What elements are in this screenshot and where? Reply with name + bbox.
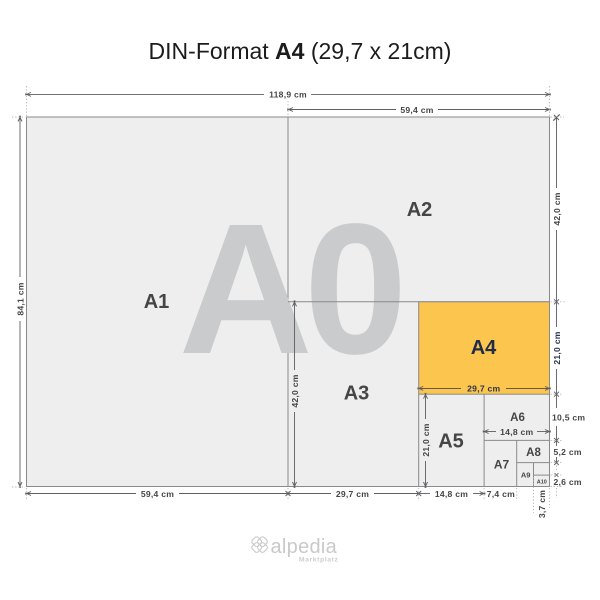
svg-text:A2: A2 <box>407 199 433 221</box>
svg-text:Marktplatz: Marktplatz <box>299 556 339 563</box>
svg-text:42,0 cm: 42,0 cm <box>290 374 300 407</box>
svg-text:21,0 cm: 21,0 cm <box>421 423 431 456</box>
svg-text:42,0 cm: 42,0 cm <box>552 192 562 225</box>
svg-text:118,9 cm: 118,9 cm <box>269 90 307 100</box>
svg-text:5,2 cm: 5,2 cm <box>554 447 582 457</box>
svg-text:A6: A6 <box>510 412 525 424</box>
svg-text:84,1 cm: 84,1 cm <box>15 282 25 315</box>
svg-text:A9: A9 <box>521 471 531 480</box>
svg-text:59,4 cm: 59,4 cm <box>141 489 174 499</box>
svg-text:alpedia: alpedia <box>271 536 338 558</box>
svg-text:29,7 cm: 29,7 cm <box>336 489 369 499</box>
svg-text:A4: A4 <box>471 337 497 359</box>
svg-text:14,8 cm: 14,8 cm <box>500 427 533 437</box>
svg-text:10,5 cm: 10,5 cm <box>552 412 585 422</box>
svg-text:A5: A5 <box>438 430 464 452</box>
svg-text:A0: A0 <box>179 186 400 393</box>
svg-text:3,7 cm: 3,7 cm <box>537 490 547 518</box>
svg-text:A10: A10 <box>537 479 547 485</box>
svg-text:7,4 cm: 7,4 cm <box>487 489 515 499</box>
svg-text:21,0 cm: 21,0 cm <box>552 331 562 364</box>
svg-text:DIN-Format A4 (29,7 x 21cm): DIN-Format A4 (29,7 x 21cm) <box>149 38 452 64</box>
svg-text:59,4 cm: 59,4 cm <box>400 105 433 115</box>
svg-text:A8: A8 <box>526 447 541 459</box>
svg-text:A3: A3 <box>344 382 370 404</box>
svg-text:2,6 cm: 2,6 cm <box>554 477 582 487</box>
svg-text:14,8 cm: 14,8 cm <box>435 489 468 499</box>
svg-text:A7: A7 <box>494 457 510 471</box>
svg-text:29,7 cm: 29,7 cm <box>467 384 500 394</box>
svg-text:A1: A1 <box>144 291 170 313</box>
